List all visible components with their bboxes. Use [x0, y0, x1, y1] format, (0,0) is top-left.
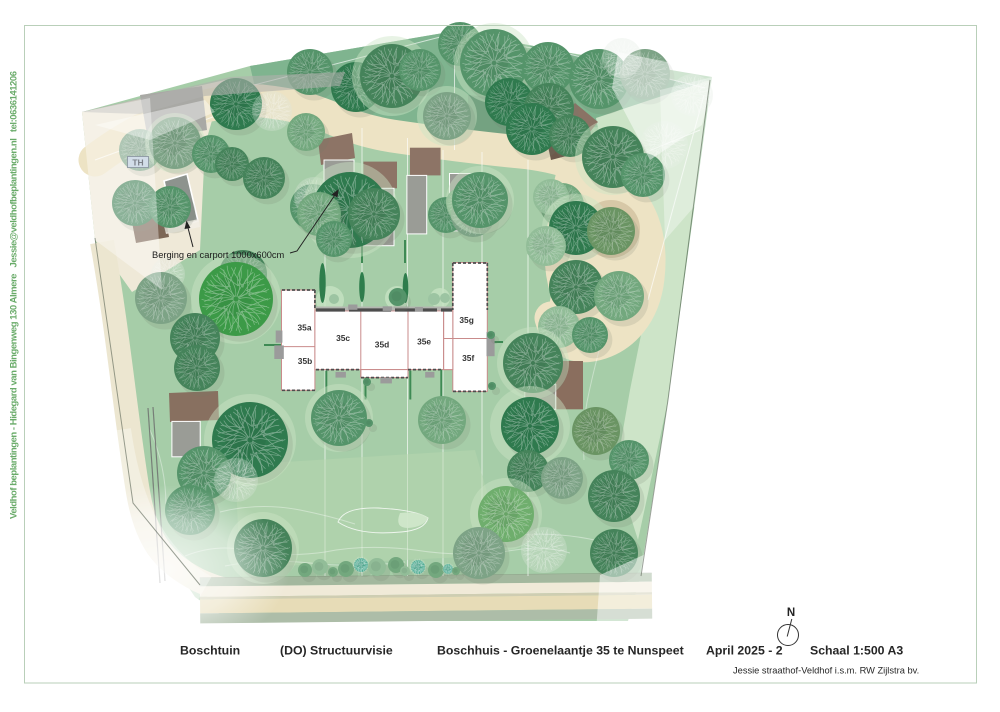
svg-text:April 2025 - 2: April 2025 - 2	[706, 644, 783, 658]
svg-text:35e: 35e	[417, 337, 431, 347]
svg-text:Boschhuis - Groenelaantje 35 t: Boschhuis - Groenelaantje 35 te Nunspeet	[437, 644, 684, 658]
svg-text:Boschtuin: Boschtuin	[180, 644, 240, 658]
svg-text:Jessie straathof-Veldhof i.s.m: Jessie straathof-Veldhof i.s.m. RW Zijls…	[733, 666, 919, 676]
svg-text:N: N	[787, 607, 795, 619]
svg-text:35g: 35g	[459, 315, 473, 325]
svg-text:35a: 35a	[298, 323, 312, 333]
svg-text:35d: 35d	[375, 339, 389, 349]
svg-text:Berging en carport 1000x600cm: Berging en carport 1000x600cm	[152, 250, 285, 260]
svg-text:35c: 35c	[336, 333, 350, 343]
svg-text:35b: 35b	[298, 356, 312, 366]
svg-text:Veldhof beplantingen - Hidegar: Veldhof beplantingen - Hidegard van Bing…	[9, 71, 20, 519]
svg-text:(DO) Structuurvisie: (DO) Structuurvisie	[280, 644, 393, 658]
svg-text:35f: 35f	[462, 353, 474, 363]
svg-text:Schaal 1:500 A3: Schaal 1:500 A3	[810, 644, 903, 658]
